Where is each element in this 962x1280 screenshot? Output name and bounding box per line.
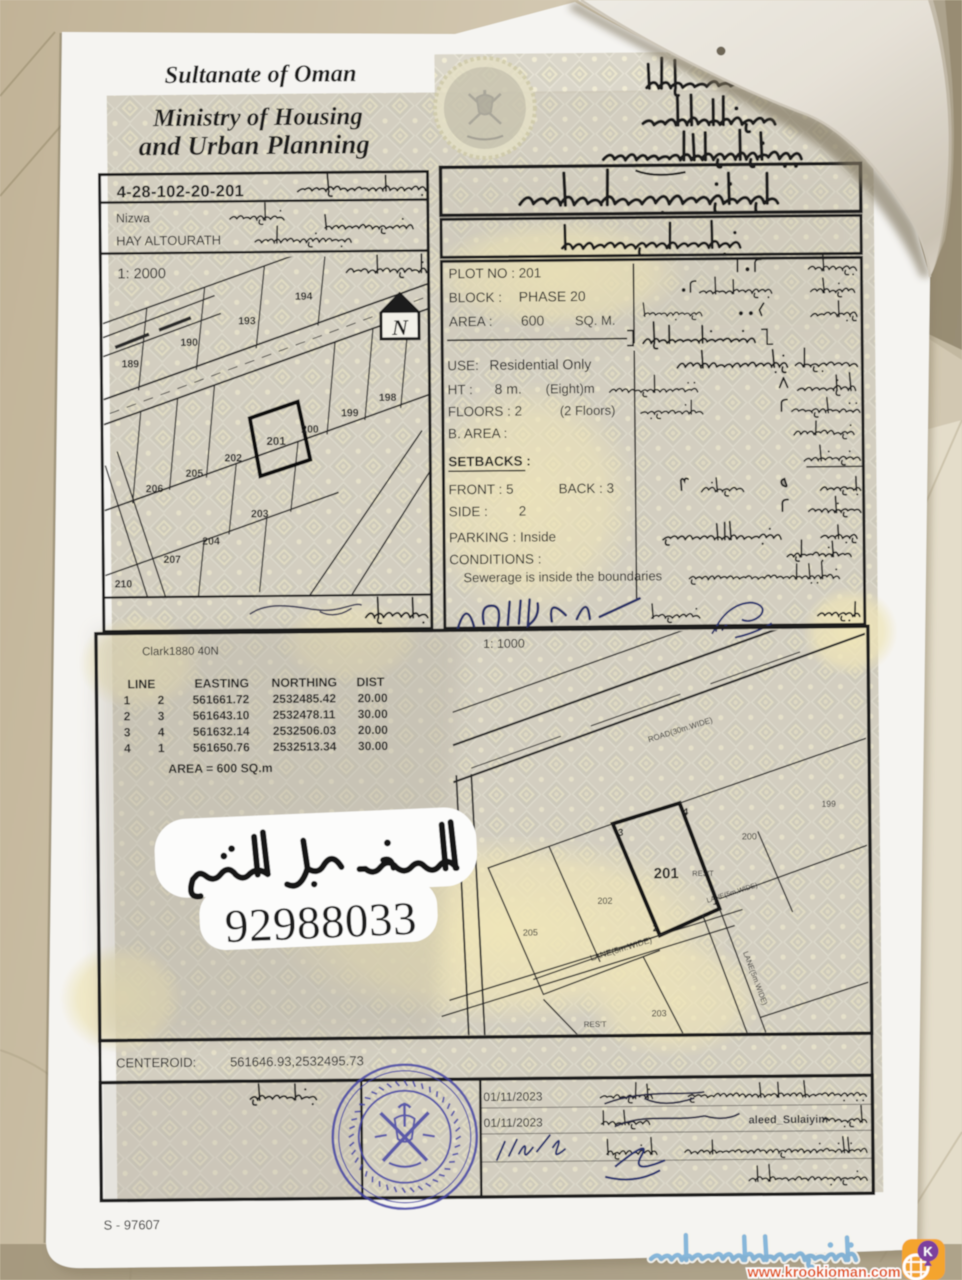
svg-text:www.krookioman.com: www.krookioman.com (746, 1265, 900, 1280)
svg-text:2532506.03: 2532506.03 (273, 723, 337, 738)
svg-text:20.00: 20.00 (358, 723, 388, 737)
svg-text:202: 202 (597, 896, 612, 906)
svg-text:2: 2 (157, 693, 164, 707)
svg-text:DIST: DIST (356, 675, 385, 689)
svg-text:EASTING: EASTING (194, 676, 249, 691)
svg-text:1: 1 (123, 693, 130, 707)
svg-text:2: 2 (124, 709, 131, 723)
svg-text:203: 203 (251, 508, 269, 520)
svg-text:200: 200 (742, 831, 757, 841)
svg-text:aleed_Sulaiyim: aleed_Sulaiyim (749, 1114, 829, 1127)
svg-text:Sultanate of Oman: Sultanate of Oman (164, 60, 356, 89)
svg-text:Sewerage is inside the boundar: Sewerage is inside the boundaries (463, 568, 662, 585)
svg-text:K: K (923, 1244, 933, 1259)
svg-text:561650.76: 561650.76 (193, 740, 250, 755)
svg-text:199: 199 (822, 799, 837, 809)
svg-text:600: 600 (521, 312, 545, 328)
svg-text:20.00: 20.00 (357, 691, 387, 705)
svg-text:561661.72: 561661.72 (192, 692, 249, 707)
svg-text:Clark1880 40N: Clark1880 40N (142, 646, 219, 659)
svg-text:CONDITIONS :: CONDITIONS : (449, 551, 541, 567)
svg-text:3: 3 (618, 828, 624, 839)
svg-text:2532513.34: 2532513.34 (273, 739, 337, 754)
svg-text:HT :: HT : (448, 382, 473, 397)
svg-text:2532478.11: 2532478.11 (273, 707, 336, 722)
svg-text:1: 2000: 1: 2000 (117, 266, 166, 282)
svg-text:PLOT NO : 201: PLOT NO : 201 (448, 265, 541, 281)
svg-text:4: 4 (158, 725, 165, 739)
svg-text:2: 2 (519, 504, 527, 519)
svg-text:01/11/2023: 01/11/2023 (484, 1115, 544, 1130)
svg-text:206: 206 (146, 483, 164, 495)
svg-text:561646.93,2532495.73: 561646.93,2532495.73 (230, 1053, 364, 1069)
svg-text:AREA = 600 SQ.m: AREA = 600 SQ.m (168, 761, 273, 776)
svg-text:201: 201 (654, 865, 679, 882)
svg-text:SETBACKS :: SETBACKS : (448, 454, 531, 470)
svg-text:PARKING : Inside: PARKING : Inside (449, 529, 556, 545)
svg-text:Residential Only: Residential Only (489, 356, 591, 373)
svg-text:BACK : 3: BACK : 3 (558, 481, 614, 497)
svg-text:SQ. M.: SQ. M. (575, 313, 616, 328)
svg-text:30.00: 30.00 (358, 707, 388, 721)
svg-text:189: 189 (122, 358, 140, 370)
svg-text:201: 201 (266, 436, 286, 448)
svg-text:NORTHING: NORTHING (271, 675, 337, 690)
svg-text:205: 205 (186, 468, 204, 480)
svg-text:3: 3 (124, 725, 131, 739)
svg-text:198: 198 (379, 392, 397, 404)
svg-text:SIDE :: SIDE : (449, 504, 488, 519)
svg-text:BLOCK :: BLOCK : (449, 290, 502, 306)
svg-text:202: 202 (224, 452, 242, 464)
svg-text:AREA :: AREA : (449, 314, 493, 329)
svg-text:2532485.42: 2532485.42 (272, 691, 336, 706)
svg-text:200: 200 (301, 424, 319, 436)
svg-text:PHASE 20: PHASE 20 (519, 288, 586, 305)
svg-text:194: 194 (295, 291, 313, 303)
svg-text:4-28-102-20-201: 4-28-102-20-201 (117, 182, 245, 201)
svg-text:561632.14: 561632.14 (193, 724, 250, 739)
svg-text:8 m.: 8 m. (495, 381, 522, 397)
svg-text:1: 1000: 1: 1000 (483, 637, 525, 651)
svg-text:CENTEROID:: CENTEROID: (116, 1055, 196, 1071)
svg-text:RES'T: RES'T (584, 1020, 607, 1029)
svg-text:193: 193 (238, 315, 256, 327)
svg-text:01/11/2023: 01/11/2023 (483, 1089, 543, 1104)
svg-text:Nizwa: Nizwa (116, 211, 150, 225)
svg-text:(2 Floors): (2 Floors) (560, 403, 616, 419)
svg-text:207: 207 (163, 554, 181, 566)
svg-text:RES'T: RES'T (692, 869, 714, 878)
svg-text:B. AREA :: B. AREA : (448, 426, 507, 442)
svg-text:(Eight)m: (Eight)m (546, 381, 595, 396)
svg-text:199: 199 (341, 407, 359, 419)
svg-text:92988033: 92988033 (224, 893, 418, 953)
svg-text:4: 4 (683, 807, 689, 818)
svg-text:FLOORS : 2: FLOORS : 2 (448, 404, 522, 420)
svg-text:FRONT : 5: FRONT : 5 (448, 482, 513, 498)
svg-text:LINE: LINE (127, 677, 155, 691)
svg-text:and Urban Planning: and Urban Planning (139, 129, 370, 161)
svg-text:205: 205 (523, 927, 538, 937)
svg-text:210: 210 (115, 578, 133, 590)
svg-text:203: 203 (652, 1008, 667, 1018)
svg-text:30.00: 30.00 (358, 739, 388, 753)
svg-text:2: 2 (653, 923, 659, 934)
svg-text:Ministry of Housing: Ministry of Housing (152, 103, 363, 132)
svg-text:HAY ALTOURATH: HAY ALTOURATH (116, 232, 221, 248)
svg-text:N: N (391, 315, 409, 340)
svg-text:190: 190 (180, 337, 198, 349)
svg-text:USE:: USE: (447, 358, 479, 373)
svg-text:S - 97607: S - 97607 (104, 1217, 161, 1233)
svg-text:561643.10: 561643.10 (193, 708, 250, 723)
svg-text:1: 1 (158, 741, 165, 755)
svg-text:204: 204 (202, 536, 220, 548)
svg-text:3: 3 (158, 709, 165, 723)
svg-text:4: 4 (124, 741, 131, 755)
